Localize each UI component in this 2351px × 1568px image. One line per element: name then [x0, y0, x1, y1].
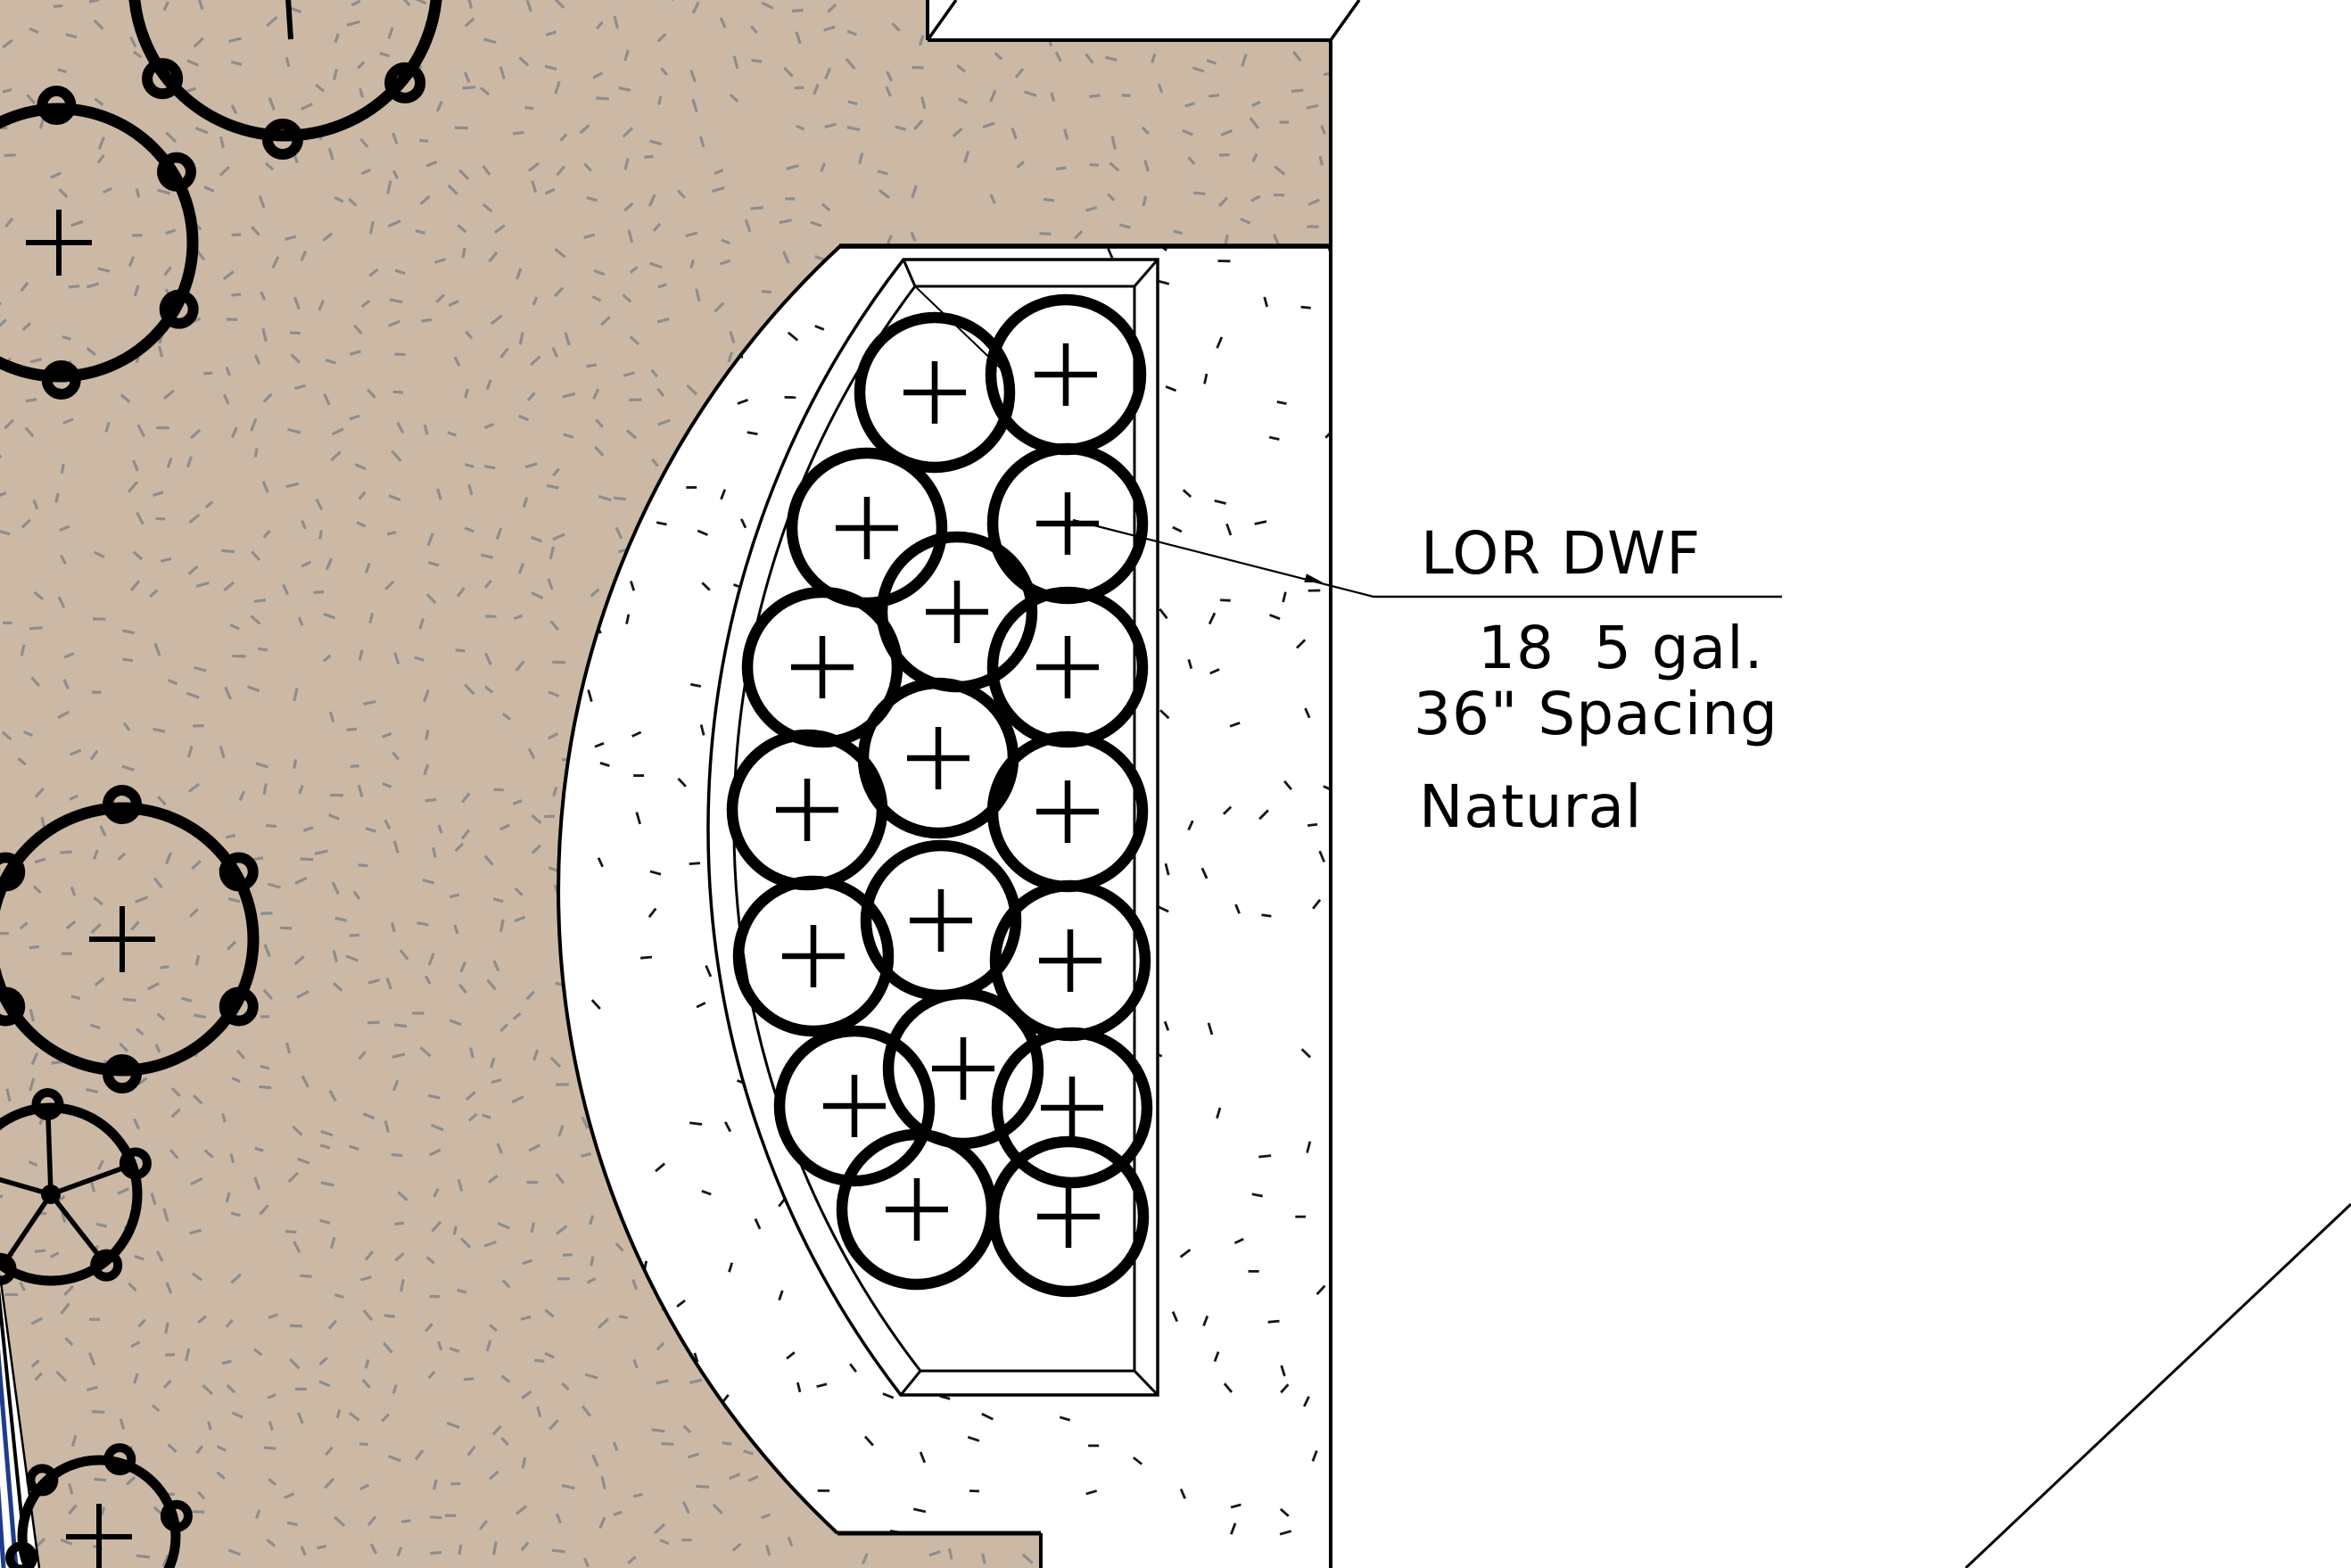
- tree-stem-tick: [287, 0, 291, 39]
- site-plan-sheet: LOR DWF 18 5 gal. 36" Spacing Natural: [0, 0, 2351, 1568]
- plant-qty-size-label: 18 5 gal.: [1478, 619, 1764, 678]
- palm-spoke: [47, 1104, 51, 1194]
- palm-trunk-hub: [41, 1184, 61, 1204]
- plant-spacing-label: 36" Spacing: [1414, 685, 1778, 744]
- plant-code-label: LOR DWF: [1421, 524, 1701, 583]
- site-plan-drawing: [0, 0, 2351, 1568]
- plant-form-label: Natural: [1419, 778, 1642, 837]
